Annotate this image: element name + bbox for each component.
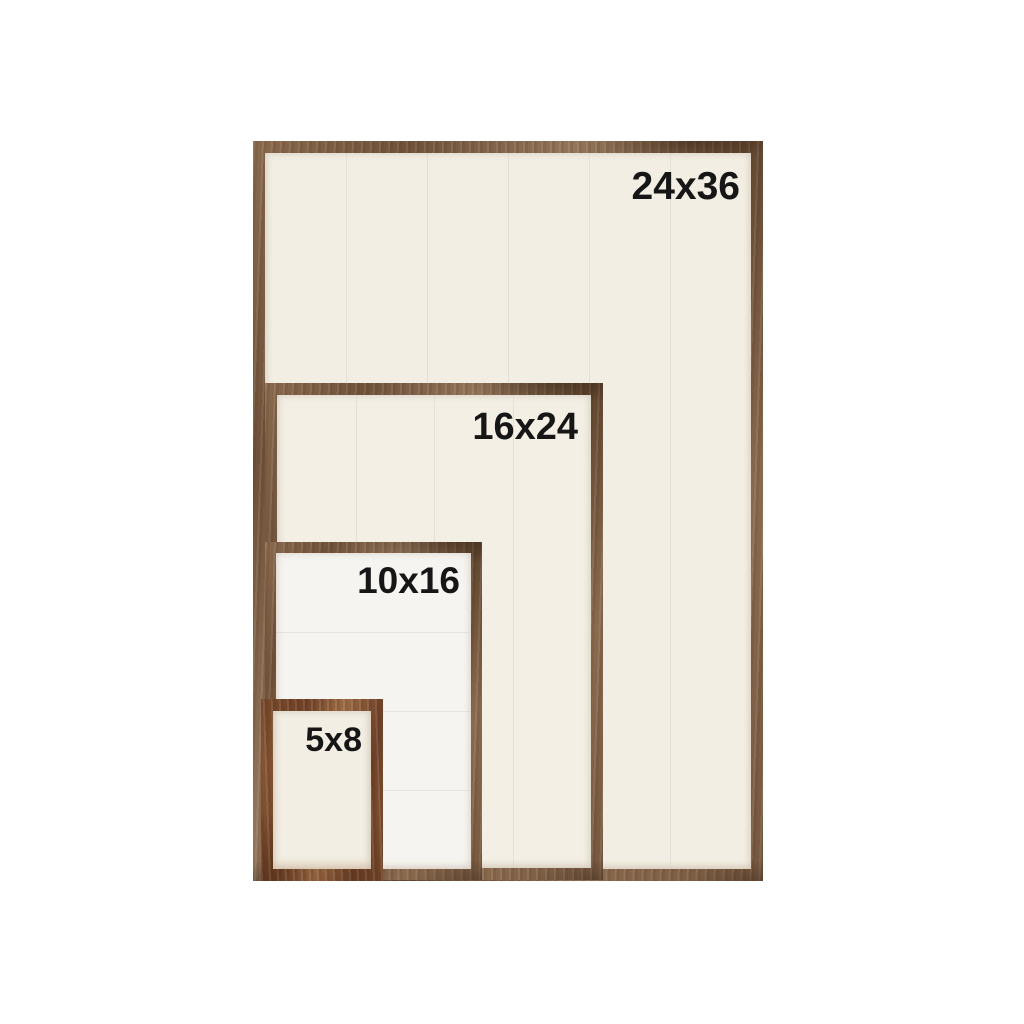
plank-seam [670, 153, 671, 869]
frame-5x8-board: 5x8 [273, 711, 371, 869]
plank-seam [276, 632, 471, 633]
frame-24x36-size-label: 24x36 [632, 167, 740, 206]
frame-5x8: 5x8 [261, 699, 383, 881]
frame-16x24-size-label: 16x24 [472, 408, 578, 446]
frame-size-comparison: 24x36 16x24 10x16 5x8 [0, 0, 1024, 1024]
frame-10x16-size-label: 10x16 [357, 562, 460, 599]
frame-5x8-size-label: 5x8 [305, 723, 362, 757]
plank-seam [513, 395, 514, 868]
